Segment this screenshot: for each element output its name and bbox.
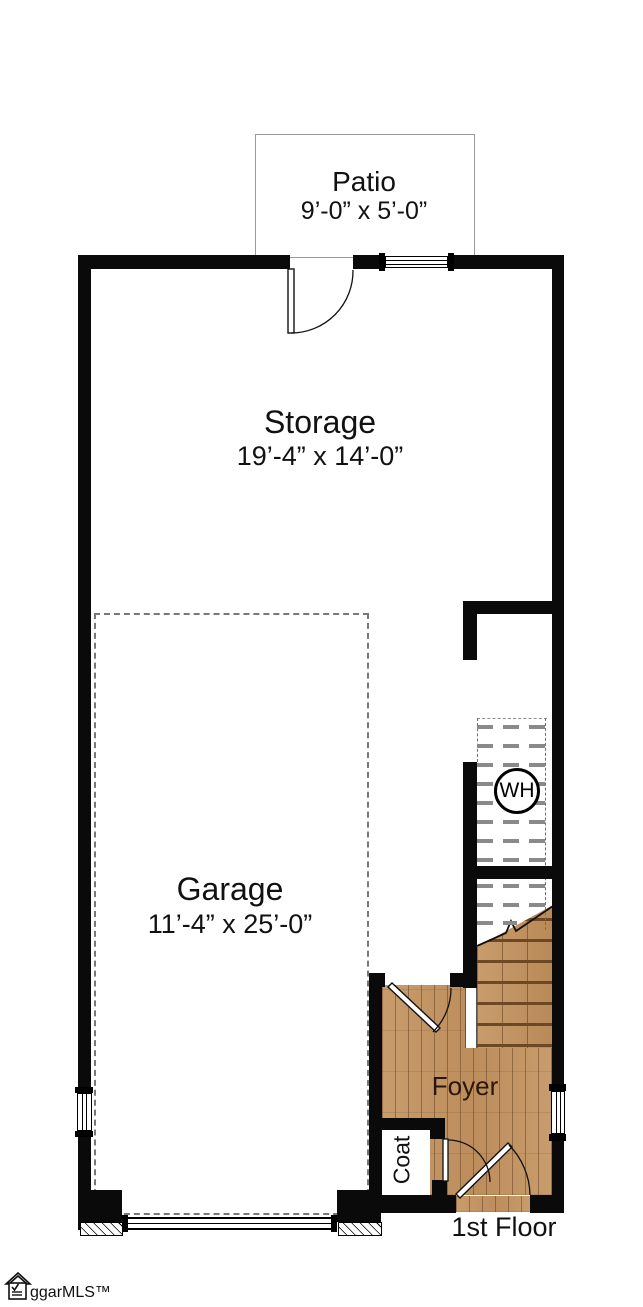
garage-door-cap-right xyxy=(331,1215,337,1232)
window-top xyxy=(385,256,448,268)
footing-hatch-right xyxy=(338,1222,382,1236)
stair-above-dash xyxy=(477,903,548,907)
stair-above-dash xyxy=(477,744,552,748)
garage-door-panel xyxy=(122,1217,337,1230)
stair-above-dash xyxy=(477,884,552,888)
stair-wall-top-stub xyxy=(463,601,477,660)
stair-above-dash xyxy=(477,763,552,767)
stair-wall-mid xyxy=(463,866,552,879)
stair-guide-dash-top xyxy=(477,718,547,719)
floor-plan: WH xyxy=(0,0,643,1307)
foyer-wall-top-right xyxy=(450,973,466,987)
coat-label: Coat xyxy=(391,1136,414,1185)
foyer-label: Foyer xyxy=(432,1073,498,1099)
window-top-cap-left xyxy=(379,253,385,271)
footing-hatch-left xyxy=(80,1222,123,1236)
patio-label: Patio xyxy=(332,168,396,196)
exterior-wall-bottom-foyer-right xyxy=(530,1195,564,1213)
entry-threshold xyxy=(456,1196,530,1212)
window-left-cap-top xyxy=(75,1087,93,1093)
foyer-wall-left xyxy=(369,973,382,1195)
stair-above-dash xyxy=(477,839,552,843)
garage-door-cap-left xyxy=(122,1215,128,1232)
stair-above-dash xyxy=(477,725,552,729)
stair-above-dash xyxy=(477,921,517,925)
mls-logo-text: ggarMLS™ xyxy=(30,1284,111,1304)
window-right-cap-bottom xyxy=(549,1134,566,1141)
window-left xyxy=(77,1093,92,1131)
patio-dimensions: 9’-0” x 5’-0” xyxy=(301,199,427,224)
garage-label: Garage xyxy=(177,873,284,905)
water-heater-symbol: WH xyxy=(494,768,540,814)
stair-above-dash xyxy=(477,820,552,824)
patio-door xyxy=(288,269,353,333)
storage-dimensions: 19’-4” x 14’-0” xyxy=(237,443,404,470)
coat-wall-stub-top xyxy=(430,1118,445,1139)
garage-dimensions: 11’-4” x 25’-0” xyxy=(148,911,313,938)
water-heater-label: WH xyxy=(500,779,535,803)
storage-label: Storage xyxy=(264,406,376,438)
stair-guide-dash-right xyxy=(545,718,546,930)
mls-logo: ggarMLS™ xyxy=(2,1270,111,1304)
exterior-wall-right-upper xyxy=(552,255,564,1084)
window-top-cap-right xyxy=(448,253,454,271)
exterior-wall-top-right xyxy=(448,255,564,269)
exterior-wall-left-upper xyxy=(78,255,91,1087)
garage-door-jamb-left xyxy=(78,1190,122,1222)
stair-above-dash xyxy=(477,858,552,862)
window-right-cap-top xyxy=(549,1084,566,1091)
window-left-cap-bottom xyxy=(75,1131,93,1137)
window-right xyxy=(551,1091,565,1134)
exterior-wall-bottom-foyer-left xyxy=(369,1195,456,1213)
floor-title: 1st Floor xyxy=(451,1214,556,1241)
coat-wall-stub-bottom xyxy=(432,1180,447,1195)
stair-stringer xyxy=(465,987,477,1048)
exterior-wall-top-left xyxy=(78,255,290,269)
